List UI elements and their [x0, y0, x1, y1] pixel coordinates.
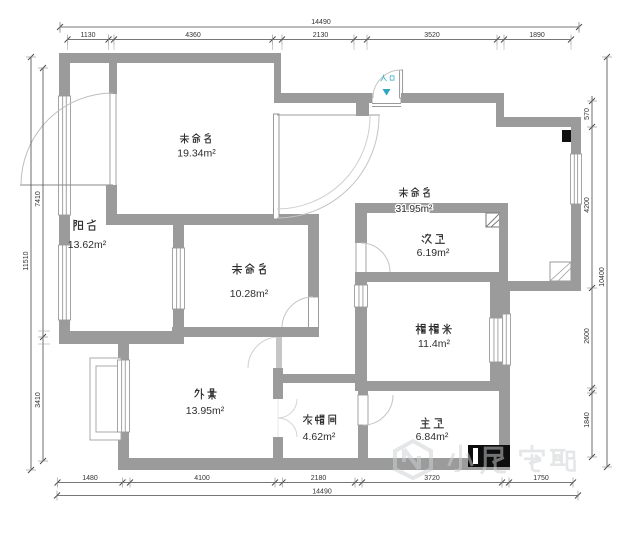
- svg-text:13.62m²: 13.62m²: [68, 239, 107, 251]
- svg-text:1750: 1750: [533, 475, 549, 482]
- svg-text:11.4m²: 11.4m²: [418, 338, 450, 350]
- svg-text:1480: 1480: [82, 475, 98, 482]
- svg-text:14490: 14490: [311, 19, 331, 26]
- svg-text:4360: 4360: [185, 32, 201, 39]
- svg-text:3520: 3520: [424, 32, 440, 39]
- svg-text:11510: 11510: [23, 251, 30, 270]
- svg-text:6.19m²: 6.19m²: [417, 247, 450, 259]
- svg-text:2180: 2180: [311, 475, 327, 482]
- svg-text:6.84m²: 6.84m²: [416, 431, 449, 443]
- svg-text:3410: 3410: [35, 392, 42, 408]
- svg-text:4200: 4200: [584, 197, 591, 213]
- svg-text:4100: 4100: [194, 475, 210, 482]
- svg-text:2600: 2600: [584, 328, 591, 344]
- svg-text:3720: 3720: [424, 475, 440, 482]
- svg-text:570: 570: [584, 108, 591, 120]
- svg-text:2130: 2130: [313, 32, 329, 39]
- svg-text:10400: 10400: [599, 267, 606, 287]
- svg-text:13.95m²: 13.95m²: [186, 405, 225, 417]
- svg-text:1890: 1890: [529, 32, 545, 39]
- svg-text:1840: 1840: [584, 412, 591, 428]
- svg-text:7410: 7410: [35, 191, 42, 207]
- svg-text:1130: 1130: [80, 32, 95, 39]
- svg-text:14490: 14490: [312, 489, 332, 496]
- svg-text:10.28m²: 10.28m²: [230, 288, 269, 300]
- svg-text:19.34m²: 19.34m²: [177, 148, 216, 160]
- svg-text:4.62m²: 4.62m²: [303, 431, 336, 443]
- svg-text:31.95m²: 31.95m²: [396, 204, 433, 215]
